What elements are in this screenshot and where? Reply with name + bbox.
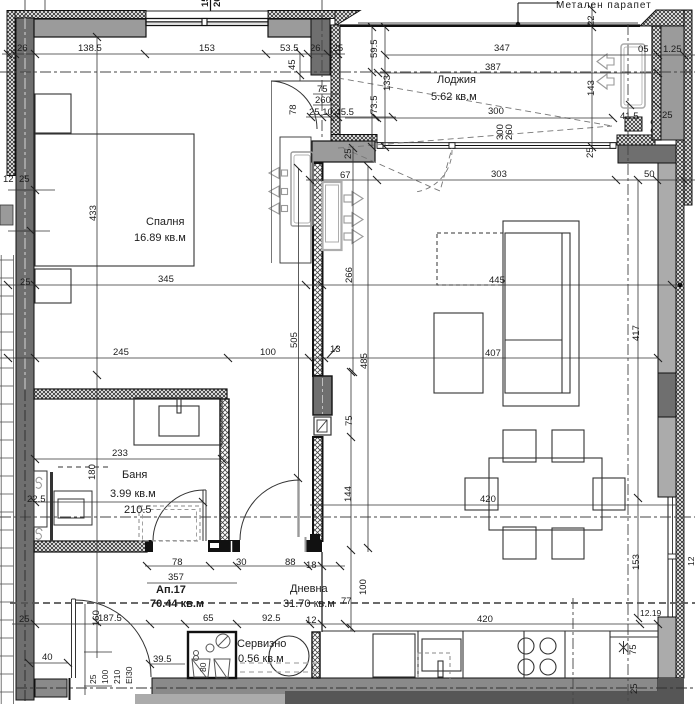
svg-text:0.56 кв.м: 0.56 кв.м [238, 653, 284, 665]
svg-text:Дневна: Дневна [290, 583, 329, 595]
svg-text:260: 260 [504, 124, 515, 140]
svg-text:303: 303 [491, 169, 507, 180]
svg-text:75: 75 [317, 84, 328, 95]
svg-text:59.5: 59.5 [369, 40, 380, 59]
svg-text:05: 05 [638, 44, 649, 55]
svg-text:100: 100 [100, 670, 110, 684]
svg-text:417: 417 [631, 325, 642, 341]
svg-text:75: 75 [344, 415, 355, 426]
svg-text:26: 26 [310, 43, 321, 54]
svg-text:22: 22 [586, 15, 597, 26]
svg-text:65: 65 [203, 613, 214, 624]
svg-text:75: 75 [628, 644, 639, 655]
svg-text:25: 25 [88, 674, 98, 684]
svg-text:40: 40 [42, 652, 53, 663]
svg-text:30: 30 [236, 557, 247, 568]
svg-text:25: 25 [19, 614, 30, 625]
svg-text:300: 300 [488, 106, 504, 117]
svg-text:31.70 кв.м: 31.70 кв.м [283, 598, 335, 610]
svg-text:25: 25 [343, 148, 354, 159]
svg-text:153: 153 [199, 43, 215, 54]
svg-text:26: 26 [212, 0, 223, 7]
svg-text:18: 18 [306, 560, 317, 571]
svg-text:80: 80 [198, 662, 208, 672]
svg-text:420: 420 [477, 614, 493, 625]
svg-text:78: 78 [172, 557, 183, 568]
svg-text:12: 12 [306, 615, 317, 626]
svg-text:347: 347 [494, 43, 510, 54]
svg-text:Сервизно: Сервизно [237, 638, 286, 650]
svg-text:100: 100 [260, 347, 276, 358]
svg-text:22.5: 22.5 [27, 494, 46, 505]
svg-text:ЕІ30: ЕІ30 [124, 666, 134, 684]
svg-text:357: 357 [168, 572, 184, 583]
svg-text:266: 266 [344, 267, 355, 283]
svg-text:245: 245 [113, 347, 129, 358]
svg-text:.25: .25 [330, 43, 343, 54]
svg-text:39.5: 39.5 [153, 654, 172, 665]
svg-text:210: 210 [112, 670, 122, 684]
svg-text:41.5: 41.5 [620, 111, 639, 122]
svg-text:133: 133 [382, 75, 393, 91]
svg-text:153: 153 [631, 554, 642, 570]
svg-text:13: 13 [330, 344, 341, 355]
svg-text:88: 88 [285, 557, 296, 568]
svg-text:53.5: 53.5 [280, 43, 299, 54]
svg-text:210.5: 210.5 [124, 504, 152, 516]
svg-text:420: 420 [480, 494, 496, 505]
svg-text:26: 26 [17, 43, 28, 54]
svg-text:Лоджия: Лоджия [437, 74, 476, 86]
svg-text:25: 25 [20, 277, 31, 288]
svg-text:25 10.45.5: 25 10.45.5 [309, 107, 354, 118]
svg-text:77: 77 [341, 596, 352, 607]
svg-text:50: 50 [644, 169, 655, 180]
svg-text:485: 485 [359, 353, 370, 369]
svg-text:505: 505 [289, 332, 300, 348]
svg-text:25: 25 [585, 147, 596, 158]
svg-text:70.44 кв.м: 70.44 кв.м [150, 598, 204, 610]
svg-text:5.62 кв.м: 5.62 кв.м [431, 91, 477, 103]
svg-text:16.89 кв.м: 16.89 кв.м [134, 232, 186, 244]
svg-text:25: 25 [662, 110, 673, 121]
svg-text:25: 25 [629, 683, 640, 694]
svg-text:3.99 кв.м: 3.99 кв.м [110, 488, 156, 500]
svg-text:407: 407 [485, 348, 501, 359]
svg-text:160: 160 [91, 610, 102, 626]
svg-text:67: 67 [340, 170, 351, 181]
svg-text:45: 45 [287, 59, 298, 70]
svg-text:143: 143 [586, 80, 597, 96]
svg-text:Баня: Баня [122, 469, 147, 481]
svg-text:387: 387 [485, 62, 501, 73]
svg-text:445: 445 [489, 275, 505, 286]
svg-text:12.19: 12.19 [640, 608, 662, 618]
svg-text:92.5: 92.5 [262, 613, 281, 624]
svg-text:12: 12 [686, 556, 695, 566]
svg-text:15: 15 [200, 0, 211, 7]
svg-text:138.5: 138.5 [78, 43, 102, 54]
svg-text:Метален парапет: Метален парапет [556, 0, 652, 11]
svg-text:433: 433 [88, 205, 99, 221]
svg-text:100: 100 [358, 579, 369, 595]
svg-text:Ап.17: Ап.17 [156, 584, 186, 596]
svg-text:1.25: 1.25 [663, 44, 682, 55]
svg-text:144: 144 [343, 486, 354, 502]
svg-text:78: 78 [288, 104, 299, 115]
svg-text:233: 233 [112, 448, 128, 459]
svg-text:260: 260 [315, 95, 331, 106]
svg-text:Спалня: Спалня [146, 216, 185, 228]
svg-text:73.5: 73.5 [369, 96, 380, 115]
svg-text:12: 12 [3, 174, 14, 185]
svg-text:345: 345 [158, 274, 174, 285]
